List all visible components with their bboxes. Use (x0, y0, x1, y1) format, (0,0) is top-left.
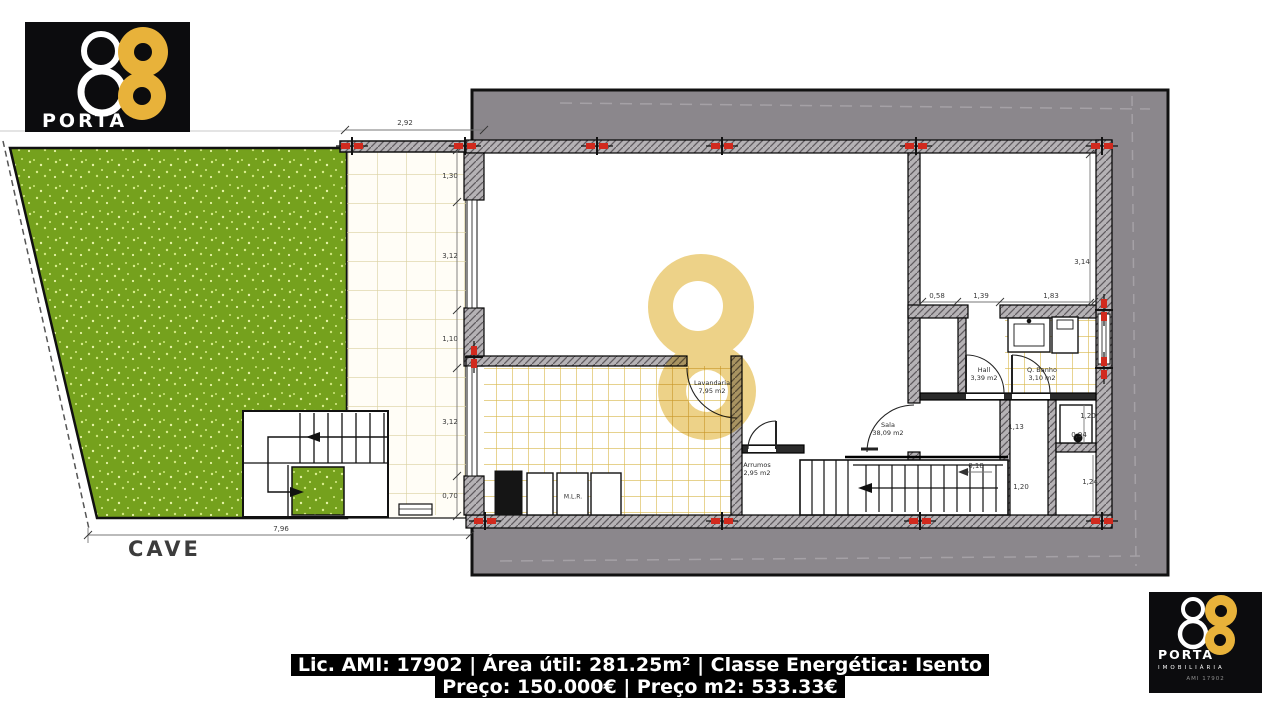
caption-line-2: Preço: 150.000€ | Preço m2: 533.33€ (435, 676, 845, 698)
brand-subtitle: IMOBILIÁRIA (40, 136, 139, 145)
listing-caption: Lic. AMI: 17902 | Área útil: 281.25m² | … (0, 654, 1280, 698)
exterior-stairs (243, 411, 388, 517)
floor-plan-drawing (0, 0, 1280, 720)
patio-step (399, 504, 432, 515)
interior-stairs (800, 460, 1008, 515)
real-estate-floorplan-frame: CAVE 2,921,303,121,103,120,707,963,140,5… (0, 0, 1280, 720)
caption-line-1: Lic. AMI: 17902 | Área útil: 281.25m² | … (291, 654, 989, 676)
brand-name: PORTA (42, 110, 127, 132)
brand-logo-top-left: PORTA IMOBILIÁRIA (25, 22, 190, 132)
